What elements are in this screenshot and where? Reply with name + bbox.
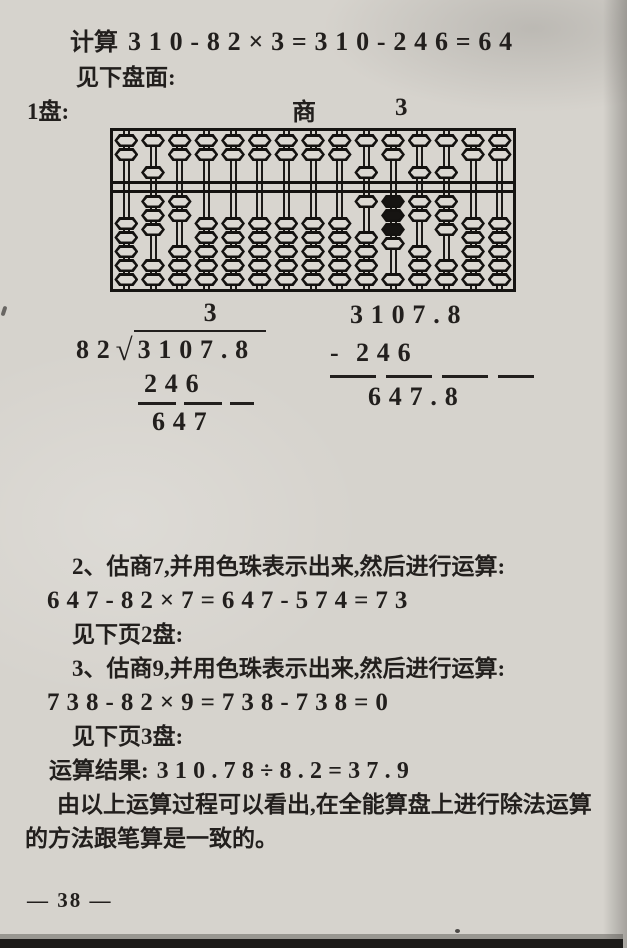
abacus-bead [141,223,165,236]
abacus-bead [354,245,378,258]
abacus-bead [221,245,245,258]
bead-core [331,234,349,242]
abacus-bead [141,166,165,179]
bead-core [384,276,402,284]
abacus-bead [408,166,432,179]
abacus-bead [168,245,192,258]
bead-core [117,151,135,159]
bead-core [144,226,162,234]
abacus-bead [141,273,165,286]
bead-core [491,151,509,159]
abacus-bead [141,209,165,222]
abacus-bead [461,259,485,272]
bead-core [384,198,402,206]
conclusion-line-1: 由以上运算过程可以看出,在全能算盘上进行除法运算 [25,788,617,822]
scan-edge-bottom [0,939,623,948]
abacus-bead-layer [113,131,513,289]
bead-core [491,220,509,228]
abacus-bead [301,245,325,258]
bead-core [171,212,189,220]
abacus-bead [354,259,378,272]
abacus-bead [434,195,458,208]
abacus-bead [408,259,432,272]
bead-core [491,234,509,242]
bead-core [464,137,482,145]
abacus-bead [248,217,272,230]
abacus-bead [408,273,432,286]
subtraction-subtrahend: 246 [356,338,418,368]
subtraction-rule-line [330,375,534,378]
bead-core [357,248,375,256]
abacus-bead [461,148,485,161]
abacus-bead [408,134,432,147]
abacus-bead [194,231,218,244]
bead-core [224,220,242,228]
radical-sign: √ [116,332,133,368]
bead-core [224,262,242,270]
bead-core [464,248,482,256]
abacus-bead [461,134,485,147]
body-paragraphs: 2、估商7,并用色珠表示出来,然后进行运算: 647-82×7=647-574=… [25,550,617,856]
step3-line: 3、估商9,并用色珠表示出来,然后进行运算: [25,652,617,686]
bead-core [224,276,242,284]
bead-core [384,226,402,234]
division-divisor: 82 [76,329,118,365]
abacus-bead [274,259,298,272]
abacus-bead [488,273,512,286]
abacus-bead [434,134,458,147]
abacus-bead [301,148,325,161]
scanned-textbook-page: 计算310-82×3=310-246=64 见下盘面: 1盘: 商 3 3 82… [0,0,627,948]
bead-core [117,220,135,228]
abacus-bead [301,217,325,230]
bead-core [171,262,189,270]
abacus-bead [274,273,298,286]
minus-sign: - [330,338,356,368]
abacus-bead [221,217,245,230]
bead-core [251,262,269,270]
bead-core [437,276,455,284]
bead-core [411,262,429,270]
bead-core [384,212,402,220]
abacus-bead [434,209,458,222]
bead-core [411,198,429,206]
bead-core [251,276,269,284]
abacus-bead-black [381,223,405,236]
quotient-digit: 3 [395,94,408,122]
abacus-bead [328,148,352,161]
step2-equation: 647-82×7=647-574=73 [25,584,617,618]
abacus-bead [354,134,378,147]
abacus-bead [194,245,218,258]
bead-core [384,137,402,145]
abacus-bead [274,231,298,244]
bead-core [357,198,375,206]
see-board-line: 见下盘面: [76,58,176,92]
bead-core [331,262,349,270]
step3-equation: 738-82×9=738-738=0 [25,686,617,720]
see-page-board2: 见下页2盘: [25,618,617,652]
bead-core [277,234,295,242]
division-main-row: 82√3107.8 [76,329,278,365]
bead-core [171,137,189,145]
bead-core [251,151,269,159]
abacus-bead [194,259,218,272]
abacus-bead [168,195,192,208]
abacus-bead [194,217,218,230]
bead-core [251,137,269,145]
bead-core [197,262,215,270]
abacus-bead [354,166,378,179]
bead-core [411,276,429,284]
abacus-bead [274,217,298,230]
bead-core [304,151,322,159]
bead-core [331,220,349,228]
abacus-bead [488,245,512,258]
bead-core [357,276,375,284]
long-division: 3 82√3107.8 246 647 [76,298,278,437]
bead-core [437,212,455,220]
bead-core [117,248,135,256]
calc-line: 计算310-82×3=310-246=64 [70,22,520,57]
abacus-bead [328,259,352,272]
page-number: — 38 — [27,888,113,913]
abacus-bead [194,134,218,147]
abacus-bead [221,259,245,272]
abacus-bead [114,231,138,244]
abacus-bead [488,231,512,244]
abacus-bead [408,195,432,208]
bead-core [411,248,429,256]
bead-core [411,212,429,220]
abacus-bead [434,223,458,236]
abacus-bead [168,209,192,222]
bead-core [144,262,162,270]
abacus-beam [113,181,513,193]
abacus-bead [408,245,432,258]
bead-core [491,276,509,284]
bead-core [411,137,429,145]
step2-line: 2、估商7,并用色珠表示出来,然后进行运算: [25,550,617,584]
result-label: 运算结果: [49,758,149,783]
abacus-bead [168,259,192,272]
bead-core [277,276,295,284]
abacus-bead [488,217,512,230]
abacus-bead-black [381,195,405,208]
abacus-bead [434,166,458,179]
bead-core [251,234,269,242]
result-line: 运算结果:310.78÷8.2=37.9 [25,754,617,788]
abacus-bead [141,195,165,208]
bead-core [331,151,349,159]
result-equation: 310.78÷8.2=37.9 [157,758,415,784]
bead-core [437,137,455,145]
abacus-bead [221,134,245,147]
abacus-bead [461,245,485,258]
abacus-bead [328,245,352,258]
abacus-bead [194,273,218,286]
bead-core [171,276,189,284]
bead-core [304,262,322,270]
subtraction-result: 647.8 [330,382,534,412]
bead-core [197,276,215,284]
bead-core [437,262,455,270]
abacus-bead [328,273,352,286]
scan-smudge [1,306,8,317]
bead-core [117,234,135,242]
abacus-bead [301,231,325,244]
bead-core [491,137,509,145]
abacus-bead [354,273,378,286]
bead-core [331,248,349,256]
bead-core [491,262,509,270]
calc-label: 计算 [70,30,118,56]
abacus-bead [488,148,512,161]
bead-core [277,220,295,228]
bead-core [357,137,375,145]
abacus-bead [381,148,405,161]
bead-core [144,169,162,177]
abacus-bead [194,148,218,161]
abacus-bead [461,217,485,230]
abacus-bead [274,245,298,258]
bead-core [277,151,295,159]
bead-core [251,220,269,228]
bead-core [277,248,295,256]
bead-core [144,137,162,145]
division-dividend: 3107.8 [134,330,266,365]
abacus-bead [248,148,272,161]
abacus-bead [381,273,405,286]
bead-core [224,151,242,159]
bead-core [224,248,242,256]
abacus-bead [488,259,512,272]
abacus-bead [274,148,298,161]
bead-core [304,248,322,256]
bead-core [437,198,455,206]
abacus-bead [328,231,352,244]
abacus-bead [221,231,245,244]
abacus-bead [434,273,458,286]
abacus-bead [354,231,378,244]
abacus-bead [114,134,138,147]
bead-core [304,234,322,242]
subtraction-work: 3107.8 - 246 647.8 [330,300,534,412]
abacus-bead [274,134,298,147]
bead-core [144,198,162,206]
abacus-bead [354,195,378,208]
bead-core [224,137,242,145]
bead-core [144,276,162,284]
abacus-bead [141,259,165,272]
abacus-bead [114,217,138,230]
abacus-bead [434,259,458,272]
bead-core [304,137,322,145]
division-quotient: 3 [150,298,278,328]
abacus-bead [328,134,352,147]
bead-core [357,234,375,242]
bead-core [197,248,215,256]
conclusion-line-2: 的方法跟笔算是一致的。 [25,822,617,856]
bead-core [464,262,482,270]
bead-core [277,137,295,145]
abacus-bead [114,259,138,272]
bead-core [197,151,215,159]
bead-core [464,234,482,242]
abacus-bead [168,273,192,286]
division-rule-line [138,402,254,405]
bead-core [357,262,375,270]
bead-core [144,212,162,220]
abacus-bead [488,134,512,147]
quotient-label: 商 [292,92,316,127]
abacus-bead [114,148,138,161]
scan-speckle [455,929,460,933]
bead-core [491,248,509,256]
bead-core [117,276,135,284]
abacus-bead [461,231,485,244]
abacus-bead [168,148,192,161]
abacus-bead [248,259,272,272]
bead-core [197,137,215,145]
bead-core [331,276,349,284]
abacus-bead [381,237,405,250]
calc-equation: 310-82×3=310-246=64 [128,27,520,56]
division-product: 246 [144,369,278,399]
bead-core [224,234,242,242]
subtraction-minuend: 3107.8 [330,300,534,330]
bead-core [117,137,135,145]
abacus-bead [328,217,352,230]
abacus-bead [221,148,245,161]
abacus-bead [114,273,138,286]
abacus-bead [221,273,245,286]
bead-core [384,240,402,248]
abacus-bead [248,245,272,258]
bead-core [411,169,429,177]
subtraction-row: - 246 [330,338,534,368]
bead-core [464,151,482,159]
bead-core [304,276,322,284]
bead-core [171,151,189,159]
bead-core [464,276,482,284]
bead-core [437,226,455,234]
bead-core [437,169,455,177]
division-remainder: 647 [152,407,278,437]
abacus-bead [248,134,272,147]
bead-core [117,262,135,270]
bead-core [171,248,189,256]
abacus-bead [301,273,325,286]
abacus-bead [301,259,325,272]
abacus-bead [301,134,325,147]
see-page-board3: 见下页3盘: [25,720,617,754]
abacus-bead [248,273,272,286]
board-label: 1盘: [27,92,69,126]
abacus-diagram [110,128,516,292]
abacus-bead [141,134,165,147]
scan-edge-right [603,0,627,948]
bead-core [464,220,482,228]
abacus-bead [114,245,138,258]
bead-core [277,262,295,270]
abacus-bead-black [381,209,405,222]
abacus-bead [248,231,272,244]
abacus-bead [408,209,432,222]
abacus-bead [461,273,485,286]
bead-core [304,220,322,228]
bead-core [331,137,349,145]
abacus-bead [168,134,192,147]
bead-core [171,198,189,206]
bead-core [197,234,215,242]
bead-core [357,169,375,177]
abacus-bead [381,134,405,147]
bead-core [197,220,215,228]
bead-core [251,248,269,256]
bead-core [384,151,402,159]
